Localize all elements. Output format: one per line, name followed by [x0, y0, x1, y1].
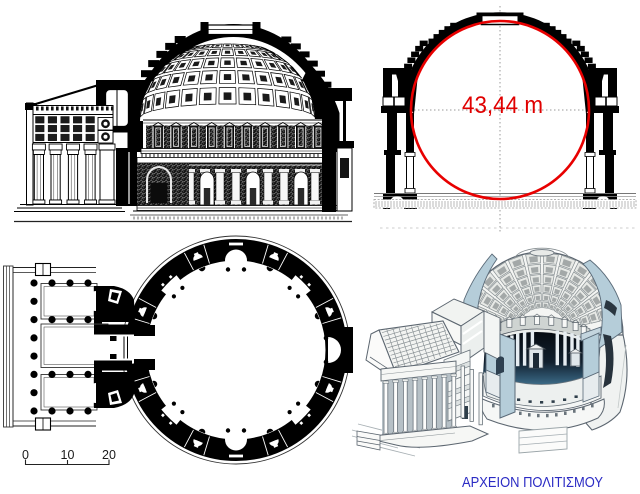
svg-text:10: 10: [61, 448, 75, 462]
svg-text:ΑΡΧΕΙΟΝ ΠΟΛΙΤΙΣΜΟΥ: ΑΡΧΕΙΟΝ ΠΟΛΙΤΙΣΜΟΥ: [462, 474, 603, 491]
svg-text:43,44 m: 43,44 m: [462, 92, 543, 119]
